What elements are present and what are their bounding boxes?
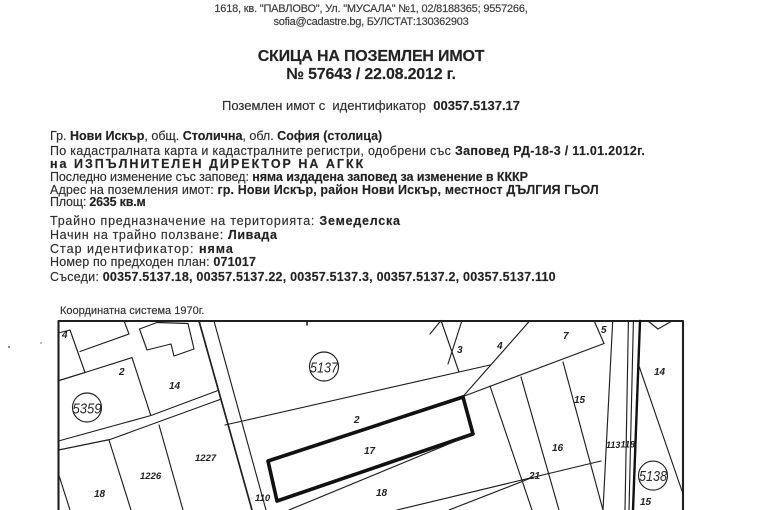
svg-text:16: 16 bbox=[552, 443, 564, 454]
svg-text:7: 7 bbox=[563, 331, 569, 342]
svg-text:21: 21 bbox=[528, 471, 541, 482]
svg-text:113: 113 bbox=[606, 440, 620, 450]
svg-text:15: 15 bbox=[574, 395, 586, 406]
svg-text:110: 110 bbox=[255, 493, 271, 504]
svg-text:5137: 5137 bbox=[310, 360, 339, 377]
svg-text:5: 5 bbox=[601, 325, 607, 336]
svg-text:1226: 1226 bbox=[140, 471, 162, 482]
svg-text:14: 14 bbox=[654, 367, 666, 378]
svg-text:18: 18 bbox=[376, 488, 388, 499]
svg-text:2: 2 bbox=[353, 415, 360, 426]
svg-text:17: 17 bbox=[364, 446, 376, 457]
svg-text:18: 18 bbox=[94, 489, 106, 500]
svg-text:118: 118 bbox=[621, 440, 635, 450]
svg-text:3: 3 bbox=[457, 345, 463, 356]
svg-text:14: 14 bbox=[169, 381, 181, 392]
svg-text:4: 4 bbox=[61, 330, 68, 341]
svg-text:1227: 1227 bbox=[195, 453, 217, 464]
svg-text:5359: 5359 bbox=[73, 401, 103, 418]
svg-text:4: 4 bbox=[496, 341, 503, 352]
svg-text:15: 15 bbox=[640, 497, 652, 508]
svg-text:5138: 5138 bbox=[639, 468, 668, 485]
svg-text:2: 2 bbox=[118, 367, 125, 378]
